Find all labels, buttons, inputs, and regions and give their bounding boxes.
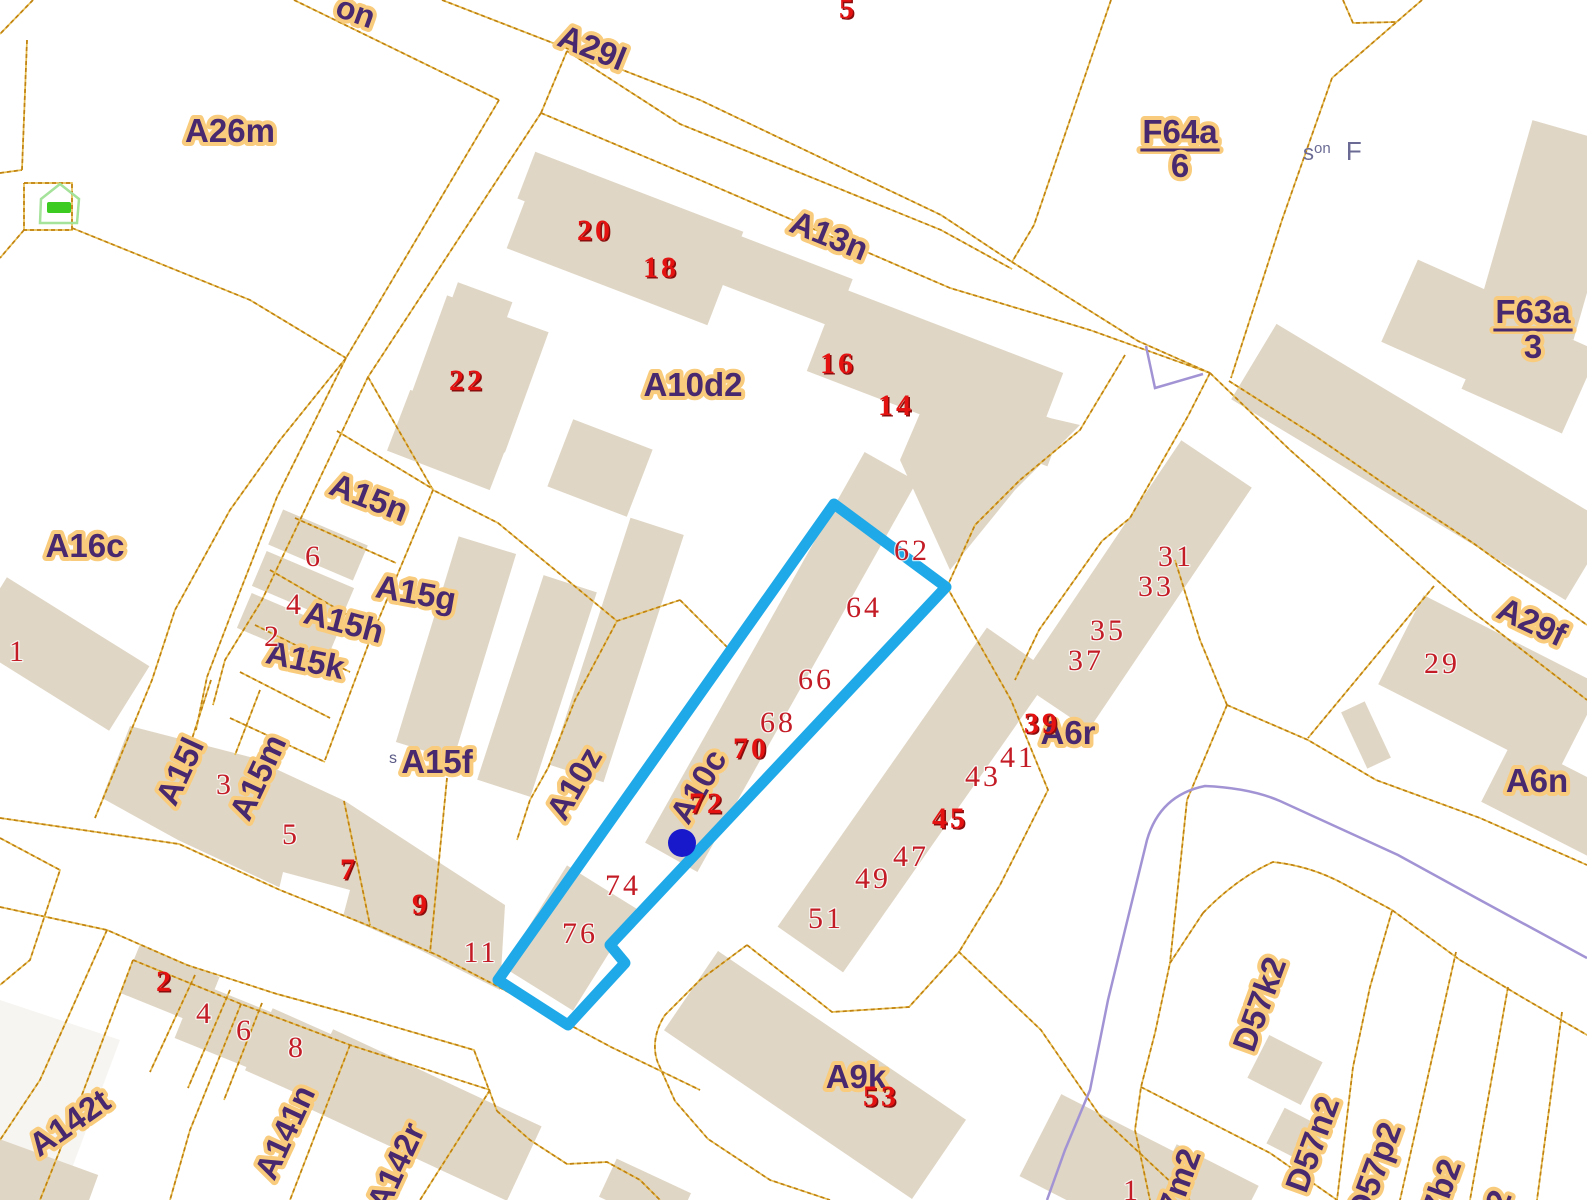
- svg-text:29: 29: [1424, 647, 1460, 680]
- svg-text:39: 39: [1024, 707, 1060, 740]
- svg-text:14: 14: [878, 389, 914, 422]
- svg-text:1: 1: [1123, 1174, 1141, 1200]
- svg-text:70: 70: [733, 732, 769, 765]
- svg-text:6: 6: [1171, 147, 1189, 184]
- svg-text:35: 35: [1090, 614, 1126, 647]
- svg-text:37: 37: [1068, 644, 1104, 677]
- svg-text:1: 1: [9, 635, 27, 668]
- svg-text:2: 2: [264, 620, 282, 653]
- svg-text:22: 22: [449, 364, 485, 397]
- svg-text:3: 3: [1524, 328, 1542, 365]
- svg-text:6: 6: [236, 1014, 254, 1047]
- svg-text:7: 7: [340, 853, 358, 886]
- svg-text:51: 51: [808, 902, 844, 935]
- svg-text:49: 49: [855, 862, 891, 895]
- svg-text:s: s: [389, 750, 397, 767]
- svg-text:74: 74: [605, 869, 641, 902]
- svg-text:A15f: A15f: [401, 743, 474, 780]
- svg-text:11: 11: [464, 936, 499, 969]
- svg-text:76: 76: [562, 917, 598, 950]
- svg-text:8: 8: [288, 1031, 306, 1064]
- svg-text:47: 47: [893, 840, 929, 873]
- svg-text:F63a: F63a: [1495, 293, 1571, 330]
- svg-text:9: 9: [412, 888, 430, 921]
- svg-text:5: 5: [839, 0, 857, 25]
- svg-text:A16c: A16c: [46, 527, 125, 564]
- svg-text:66: 66: [798, 663, 834, 696]
- svg-text:18: 18: [643, 251, 679, 284]
- svg-text:F64a: F64a: [1142, 113, 1218, 150]
- svg-text:20: 20: [577, 214, 613, 247]
- svg-text:2: 2: [156, 965, 174, 998]
- svg-text:41: 41: [1000, 741, 1036, 774]
- svg-text:53: 53: [863, 1080, 899, 1113]
- svg-text:3: 3: [216, 768, 234, 801]
- svg-text:A26m: A26m: [185, 112, 275, 149]
- svg-text:A10d2: A10d2: [643, 366, 742, 403]
- svg-text:5: 5: [282, 818, 300, 851]
- svg-text:64: 64: [846, 591, 882, 624]
- svg-text:4: 4: [286, 588, 304, 621]
- svg-text:6: 6: [305, 540, 323, 573]
- svg-text:72: 72: [689, 787, 725, 820]
- svg-text:45: 45: [932, 802, 968, 835]
- svg-text:4: 4: [196, 997, 214, 1030]
- svg-text:31: 31: [1158, 540, 1194, 573]
- svg-text:43: 43: [965, 760, 1001, 793]
- svg-text:A6n: A6n: [1506, 762, 1568, 799]
- svg-text:62: 62: [894, 534, 930, 567]
- svg-text:16: 16: [820, 347, 856, 380]
- svg-text:33: 33: [1138, 570, 1174, 603]
